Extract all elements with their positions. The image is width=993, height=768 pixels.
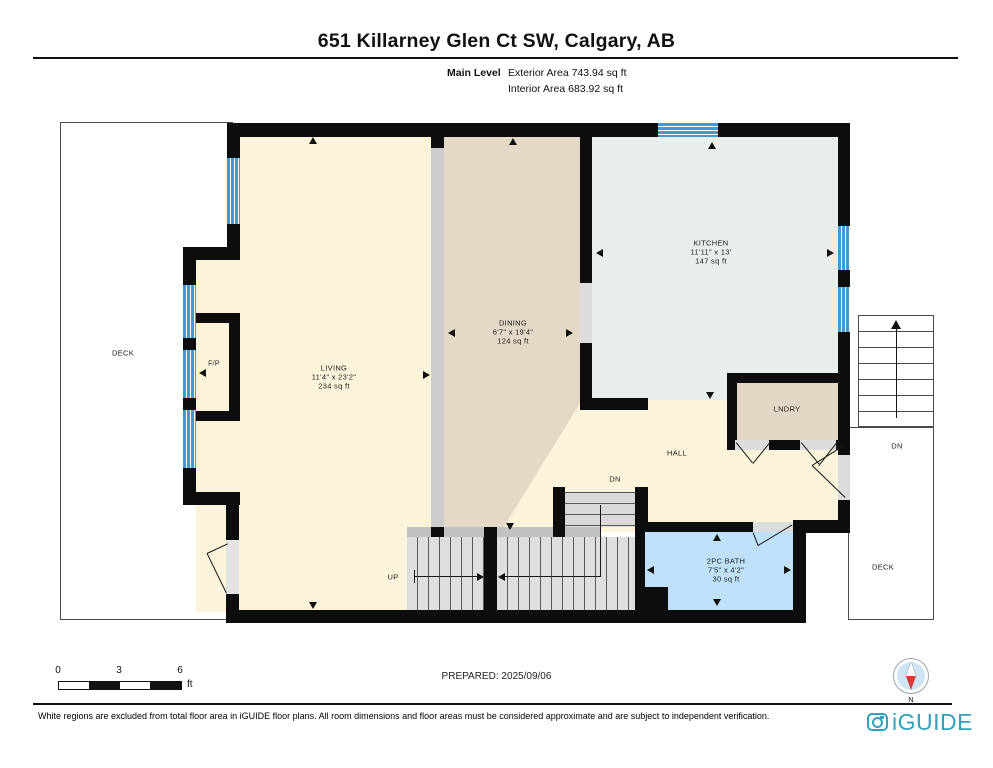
disclaimer-text: White regions are excluded from total fl…	[38, 711, 769, 721]
compass-needle-south-icon	[906, 676, 916, 690]
iguide-logo: iGUIDE	[867, 709, 973, 735]
prepared-date: PREPARED: 2025/09/06	[0, 671, 993, 682]
window	[227, 158, 240, 224]
wall-segment	[793, 520, 806, 622]
bath-label: 2PC BATH 7'5" x 4'2" 30 sq ft	[707, 557, 746, 584]
dim-arrow-up-icon	[509, 138, 517, 145]
dim-arrow-right-icon	[566, 329, 573, 337]
exterior-stairs-arrow-line	[896, 328, 897, 418]
wall-segment	[727, 373, 838, 383]
dim-arrow-right-icon	[423, 371, 430, 379]
dining-label: DINING 6'7" x 19'4" 124 sq ft	[493, 319, 534, 346]
exterior-stairs-down-label: DN	[891, 442, 902, 451]
level-label: Main Level	[447, 67, 501, 79]
header-divider	[33, 57, 958, 59]
stairs-up-flight	[407, 537, 484, 612]
wall-right	[838, 123, 850, 226]
stairs-up-label: UP	[387, 573, 398, 582]
deck-left-label: DECK	[112, 349, 134, 358]
down-arrow-line	[505, 576, 601, 577]
exterior-stairs-arrow-up-icon	[891, 320, 901, 329]
exterior-area: Exterior Area 743.94 sq ft	[508, 67, 626, 79]
entry-door-opening	[226, 540, 239, 594]
wall-right	[838, 332, 850, 455]
wall-segment	[553, 487, 565, 537]
brand-name: iGUIDE	[892, 709, 973, 735]
fireplace-wall	[196, 411, 240, 421]
wall-bottom	[226, 610, 806, 623]
dim-arrow-right-icon	[784, 566, 791, 574]
wall-dining-kitchen	[580, 135, 592, 283]
down-arrow-head-icon	[498, 573, 505, 581]
dim-arrow-down-icon	[506, 523, 514, 530]
window	[838, 226, 850, 270]
hall-label: HALL	[667, 449, 687, 458]
wall-right	[838, 500, 850, 533]
fireplace-wall	[229, 313, 240, 421]
interior-area: Interior Area 683.92 sq ft	[508, 83, 623, 95]
footer-divider	[33, 703, 952, 705]
kitchen-label: KITCHEN 11'11" x 13' 147 sq ft	[691, 239, 732, 266]
dim-arrow-left-icon	[596, 249, 603, 257]
window	[183, 285, 196, 338]
page-title: 651 Killarney Glen Ct SW, Calgary, AB	[0, 30, 993, 53]
dim-arrow-up-icon	[713, 534, 721, 541]
stairs-down-label: DN	[609, 475, 620, 484]
stairs-down-flight	[497, 537, 635, 612]
stair-divider-wall	[484, 533, 497, 612]
up-arrow-line	[414, 576, 477, 577]
floorplan-page: 651 Killarney Glen Ct SW, Calgary, AB Ma…	[0, 0, 993, 768]
compass-needle-north-icon	[906, 662, 916, 676]
laundry-label: LNDRY	[774, 405, 801, 414]
down-arrow-vline	[600, 505, 601, 577]
up-arrow-tick	[414, 570, 415, 583]
kitchen-floor	[592, 135, 838, 400]
deck-right-region	[848, 427, 934, 620]
wall-segment	[727, 373, 737, 450]
window	[658, 123, 718, 137]
window	[183, 410, 196, 468]
wall-segment	[226, 493, 239, 540]
dim-arrow-down-icon	[706, 392, 714, 399]
dim-arrow-up-icon	[708, 142, 716, 149]
wall-right	[838, 270, 850, 287]
dim-arrow-right-icon	[827, 249, 834, 257]
dim-arrow-left-icon	[448, 329, 455, 337]
room-divider	[431, 137, 444, 527]
wall-notch	[183, 247, 240, 260]
wall-segment	[645, 587, 668, 612]
dim-arrow-left-icon	[199, 369, 206, 377]
scale-bar-segments	[58, 681, 182, 690]
dim-arrow-down-icon	[713, 599, 721, 606]
dim-arrow-up-icon	[309, 137, 317, 144]
up-arrow-head-icon	[477, 573, 484, 581]
wall-dining-kitchen	[580, 343, 592, 410]
dining-kitchen-opening	[580, 283, 592, 343]
fireplace-label: F/P	[208, 360, 220, 369]
wall-segment	[431, 527, 444, 537]
dim-arrow-left-icon	[647, 566, 654, 574]
camera-icon	[867, 713, 888, 731]
deck-right-label: DECK	[872, 563, 894, 572]
living-label: LIVING 11'4" x 23'2" 234 sq ft	[312, 364, 356, 391]
window	[838, 287, 850, 332]
window	[183, 350, 196, 398]
wall-top	[227, 123, 850, 137]
wall-segment	[645, 522, 753, 532]
dim-arrow-down-icon	[309, 602, 317, 609]
